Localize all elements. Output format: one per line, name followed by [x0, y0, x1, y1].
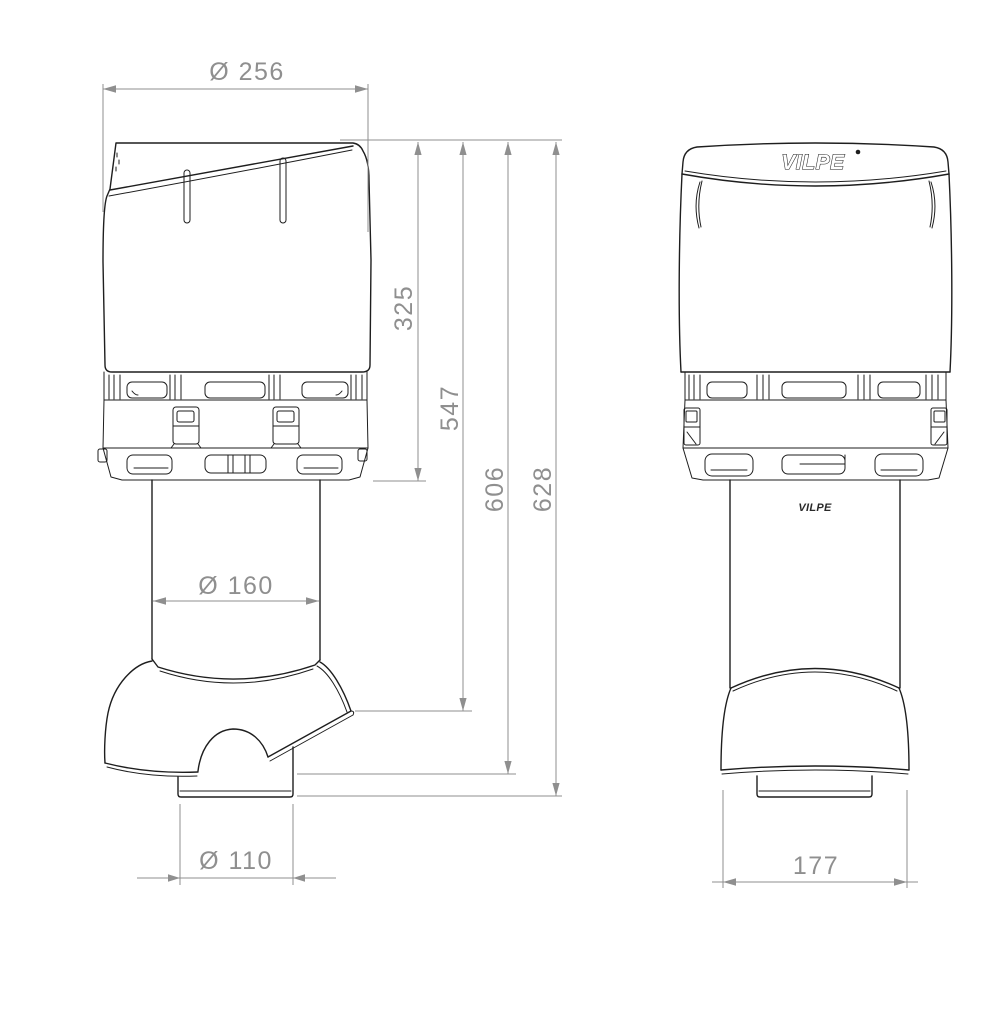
snap-clip-detail — [684, 427, 700, 444]
dim-label-height-to-skirt: 606 — [481, 466, 509, 512]
snap-clip-fold — [171, 426, 201, 448]
body-sides — [679, 174, 952, 372]
bell-top-arc-inner — [733, 672, 897, 691]
flange-slot — [297, 455, 342, 474]
outlet-stub — [757, 776, 872, 797]
snap-clip-hole — [934, 411, 945, 422]
collar-sloped-edge-inner — [270, 711, 354, 761]
dim-label-outlet-diameter: Ø 110 — [199, 847, 273, 875]
collar-left-bulge — [105, 661, 152, 763]
opening-hook-detail — [132, 391, 342, 395]
visor-edge-inner — [109, 150, 352, 196]
vent-opening — [302, 382, 348, 398]
vent-opening — [127, 382, 167, 398]
snap-clip-hole — [177, 411, 194, 422]
collar-bottom-edge — [105, 763, 198, 772]
bell-top-arc — [731, 669, 899, 689]
bell-bottom-edge — [721, 766, 909, 770]
collar-dome — [198, 729, 268, 771]
flange-band-1 — [685, 372, 946, 400]
flange-band-1 — [104, 372, 367, 400]
collar-saddle-inner — [160, 669, 313, 683]
hood-outline — [103, 143, 371, 372]
snap-clip-detail — [931, 427, 947, 444]
vent-opening — [205, 382, 265, 398]
bell-sides — [721, 688, 909, 770]
flange-band-3 — [103, 448, 368, 480]
dim-label-collar-width: 177 — [793, 852, 839, 880]
flange-slot — [705, 454, 753, 476]
snap-clip-fold — [271, 426, 301, 448]
slot-step-detail — [800, 455, 845, 464]
flange-band-2 — [683, 400, 948, 448]
snap-clip-hole — [686, 411, 697, 422]
pipe-walls — [152, 480, 320, 660]
vent-opening — [878, 382, 920, 398]
registered-mark-dot — [856, 150, 861, 155]
moulded-logo-marks — [116, 153, 119, 171]
side-lug — [98, 449, 107, 462]
pipe-logo: VILPE — [798, 502, 832, 514]
flange-slot — [875, 454, 923, 476]
front-view: VILPE VILPE — [679, 143, 952, 797]
flange-slot — [205, 455, 266, 473]
dim-label-pipe-diameter: Ø 160 — [198, 572, 274, 600]
flange-slot — [127, 455, 172, 474]
dim-label-height-to-collar-edge: 547 — [436, 385, 464, 431]
visor-edge — [110, 146, 353, 190]
dim-label-top-diameter: Ø 256 — [209, 58, 285, 86]
snap-clip-hole — [277, 411, 294, 422]
corner-ribs — [696, 181, 935, 228]
technical-drawing-canvas: VILPE VILPE — [0, 0, 1005, 1024]
hood-rib — [184, 170, 190, 223]
bell-bottom-edge-inner — [722, 770, 908, 774]
dim-label-hood-height: 325 — [390, 285, 418, 331]
flange-ticks — [109, 375, 362, 399]
flange-ticks — [689, 375, 938, 399]
flange-band-2 — [103, 400, 368, 448]
dim-label-total-height: 628 — [529, 466, 557, 512]
slot-dividers — [228, 455, 250, 473]
collar-sloped-edge — [268, 711, 351, 757]
vent-opening — [707, 382, 747, 398]
brand-logo: VILPE — [781, 151, 845, 174]
vent-dimensional-drawing: VILPE VILPE — [0, 0, 1005, 1024]
hood-rib — [280, 158, 286, 223]
vent-opening — [782, 382, 846, 398]
cap-bottom-arc — [682, 174, 949, 186]
side-view — [98, 143, 371, 797]
